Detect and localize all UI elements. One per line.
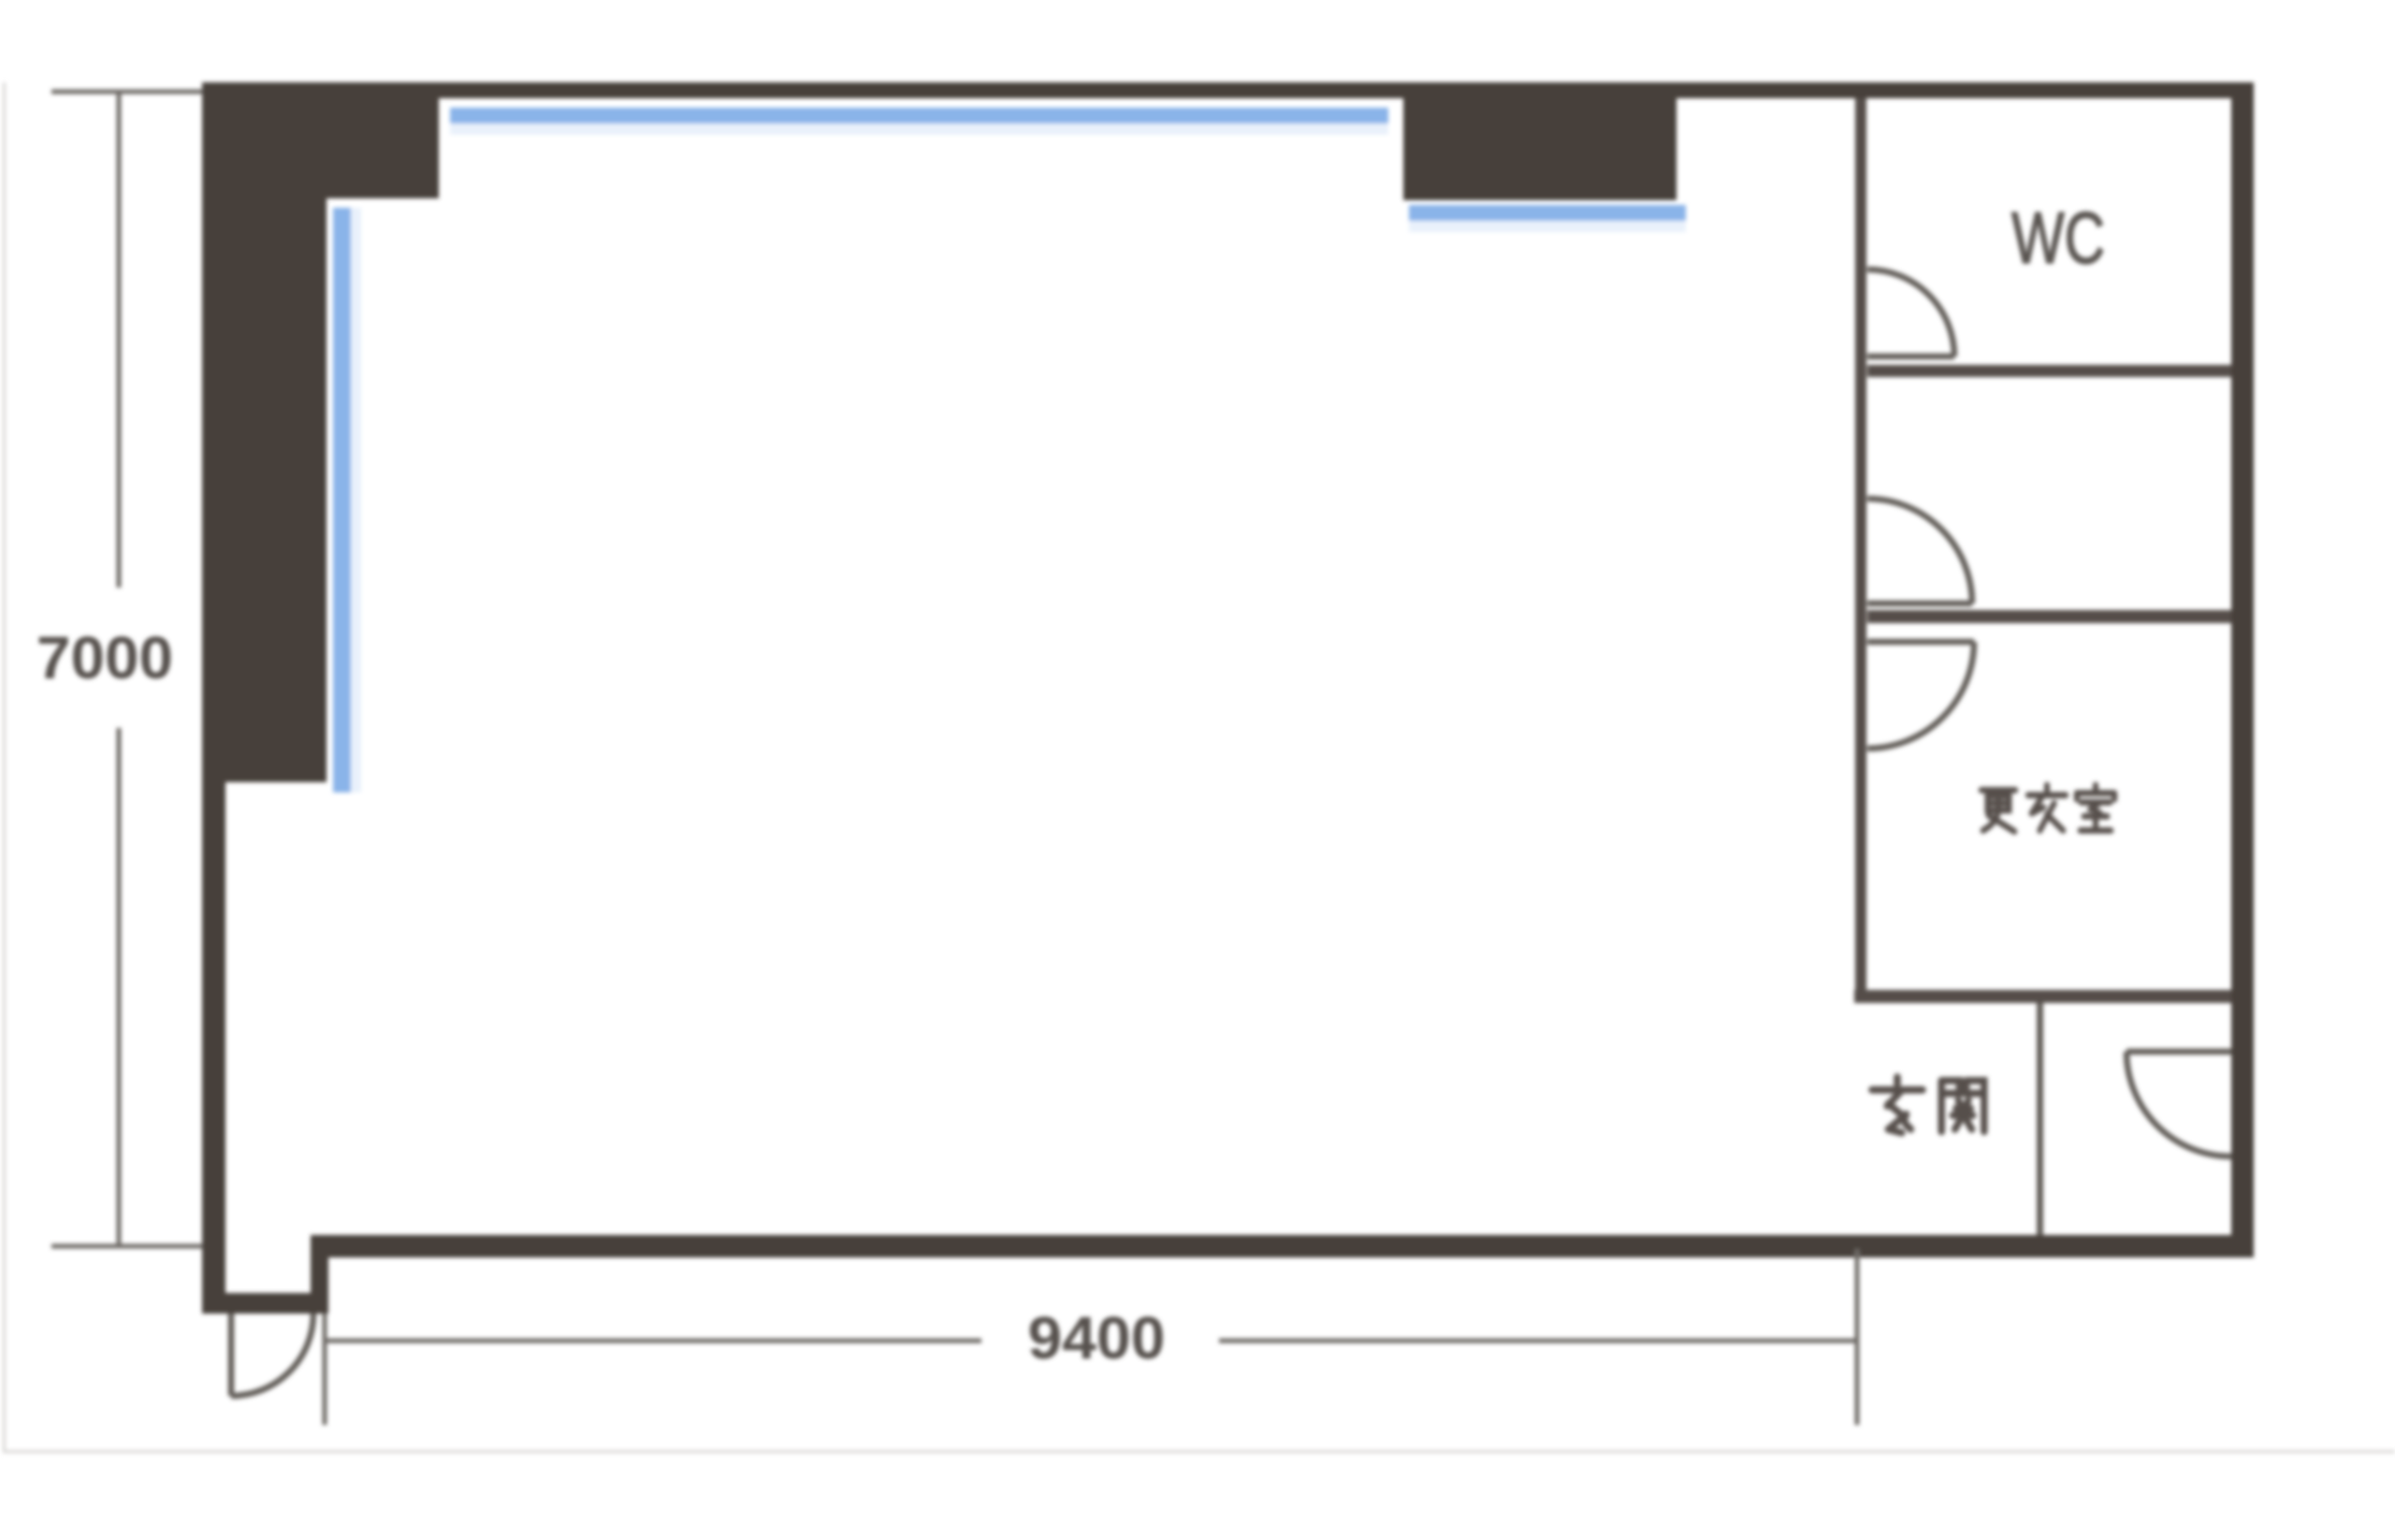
- svg-text:9400: 9400: [1028, 1304, 1166, 1372]
- svg-text:WC: WC: [2011, 196, 2105, 279]
- svg-text:7000: 7000: [36, 624, 173, 691]
